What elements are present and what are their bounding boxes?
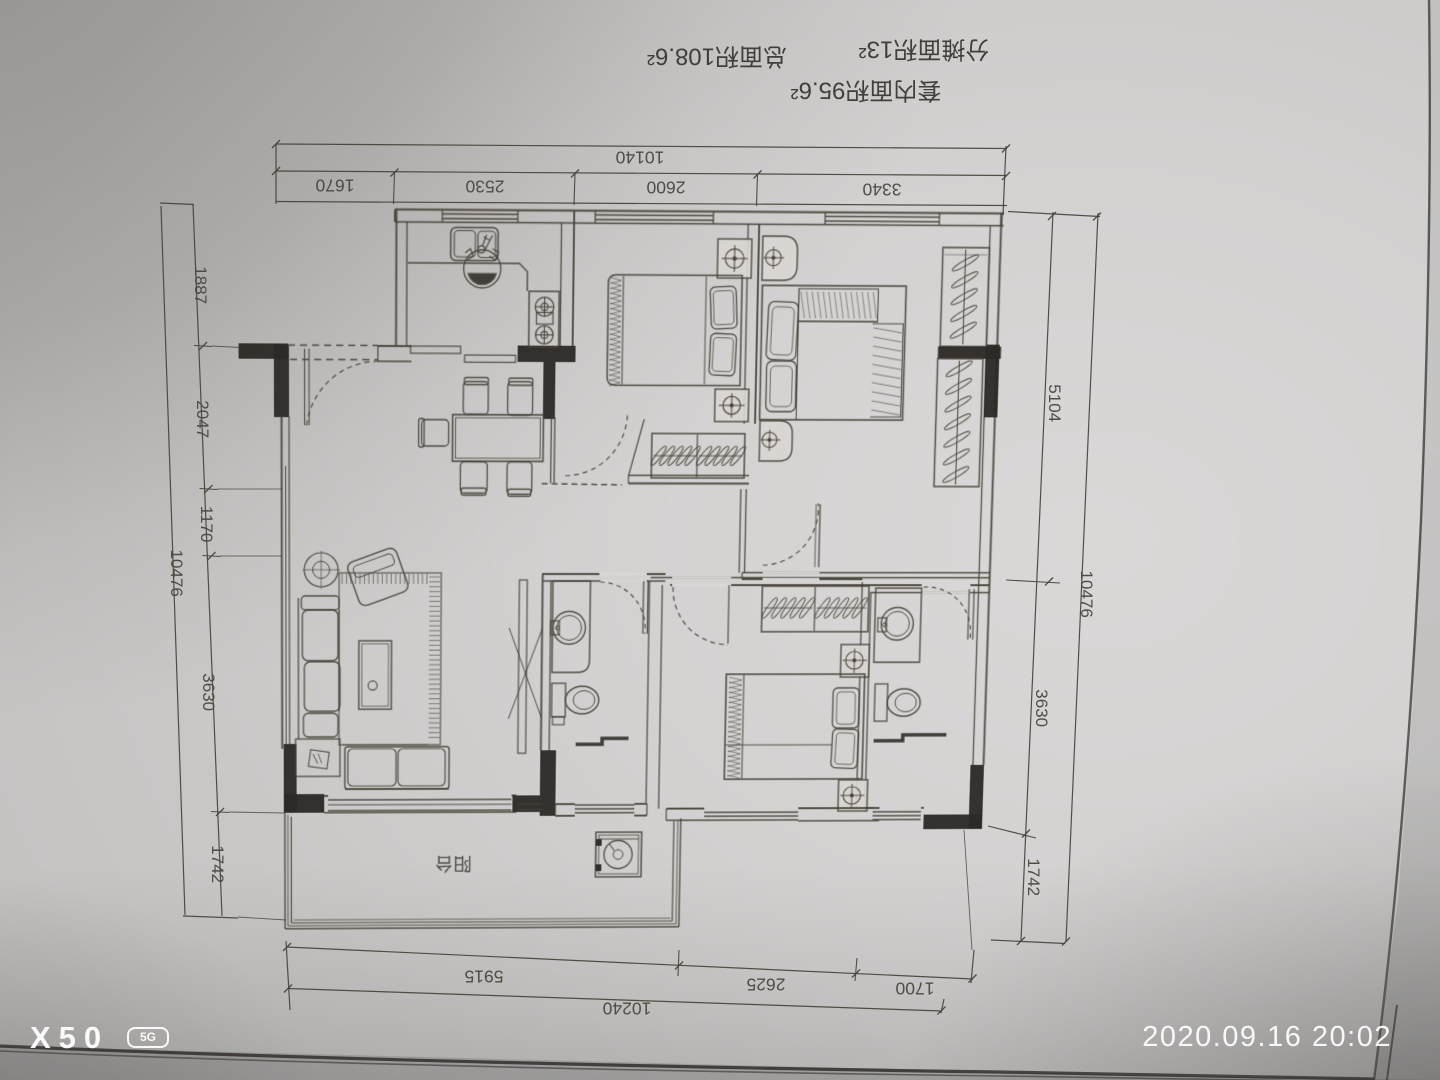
svg-text:5915: 5915 [465, 967, 504, 987]
svg-text:1670: 1670 [315, 176, 354, 196]
svg-text:2530: 2530 [465, 177, 504, 197]
svg-text:10476: 10476 [167, 550, 186, 597]
svg-text:1742: 1742 [1024, 858, 1043, 896]
svg-text:2047: 2047 [193, 400, 212, 438]
svg-text:1700: 1700 [895, 979, 934, 999]
svg-text:1887: 1887 [191, 266, 210, 304]
svg-text:套内面积95.6²: 套内面积95.6² [791, 76, 942, 103]
svg-text:总面积108.6²: 总面积108.6² [647, 42, 787, 69]
svg-text:10240: 10240 [602, 999, 651, 1019]
svg-text:2600: 2600 [646, 178, 685, 198]
svg-text:3630: 3630 [1032, 689, 1051, 727]
svg-text:10476: 10476 [1077, 571, 1096, 618]
svg-text:1742: 1742 [208, 845, 227, 883]
svg-text:5104: 5104 [1045, 384, 1064, 422]
svg-text:3340: 3340 [862, 180, 901, 200]
svg-text:2625: 2625 [747, 975, 786, 995]
svg-text:1170: 1170 [197, 506, 216, 543]
svg-text:10140: 10140 [615, 148, 664, 168]
svg-text:分摊面积13²: 分摊面积13² [859, 35, 990, 62]
svg-text:3630: 3630 [199, 673, 218, 711]
